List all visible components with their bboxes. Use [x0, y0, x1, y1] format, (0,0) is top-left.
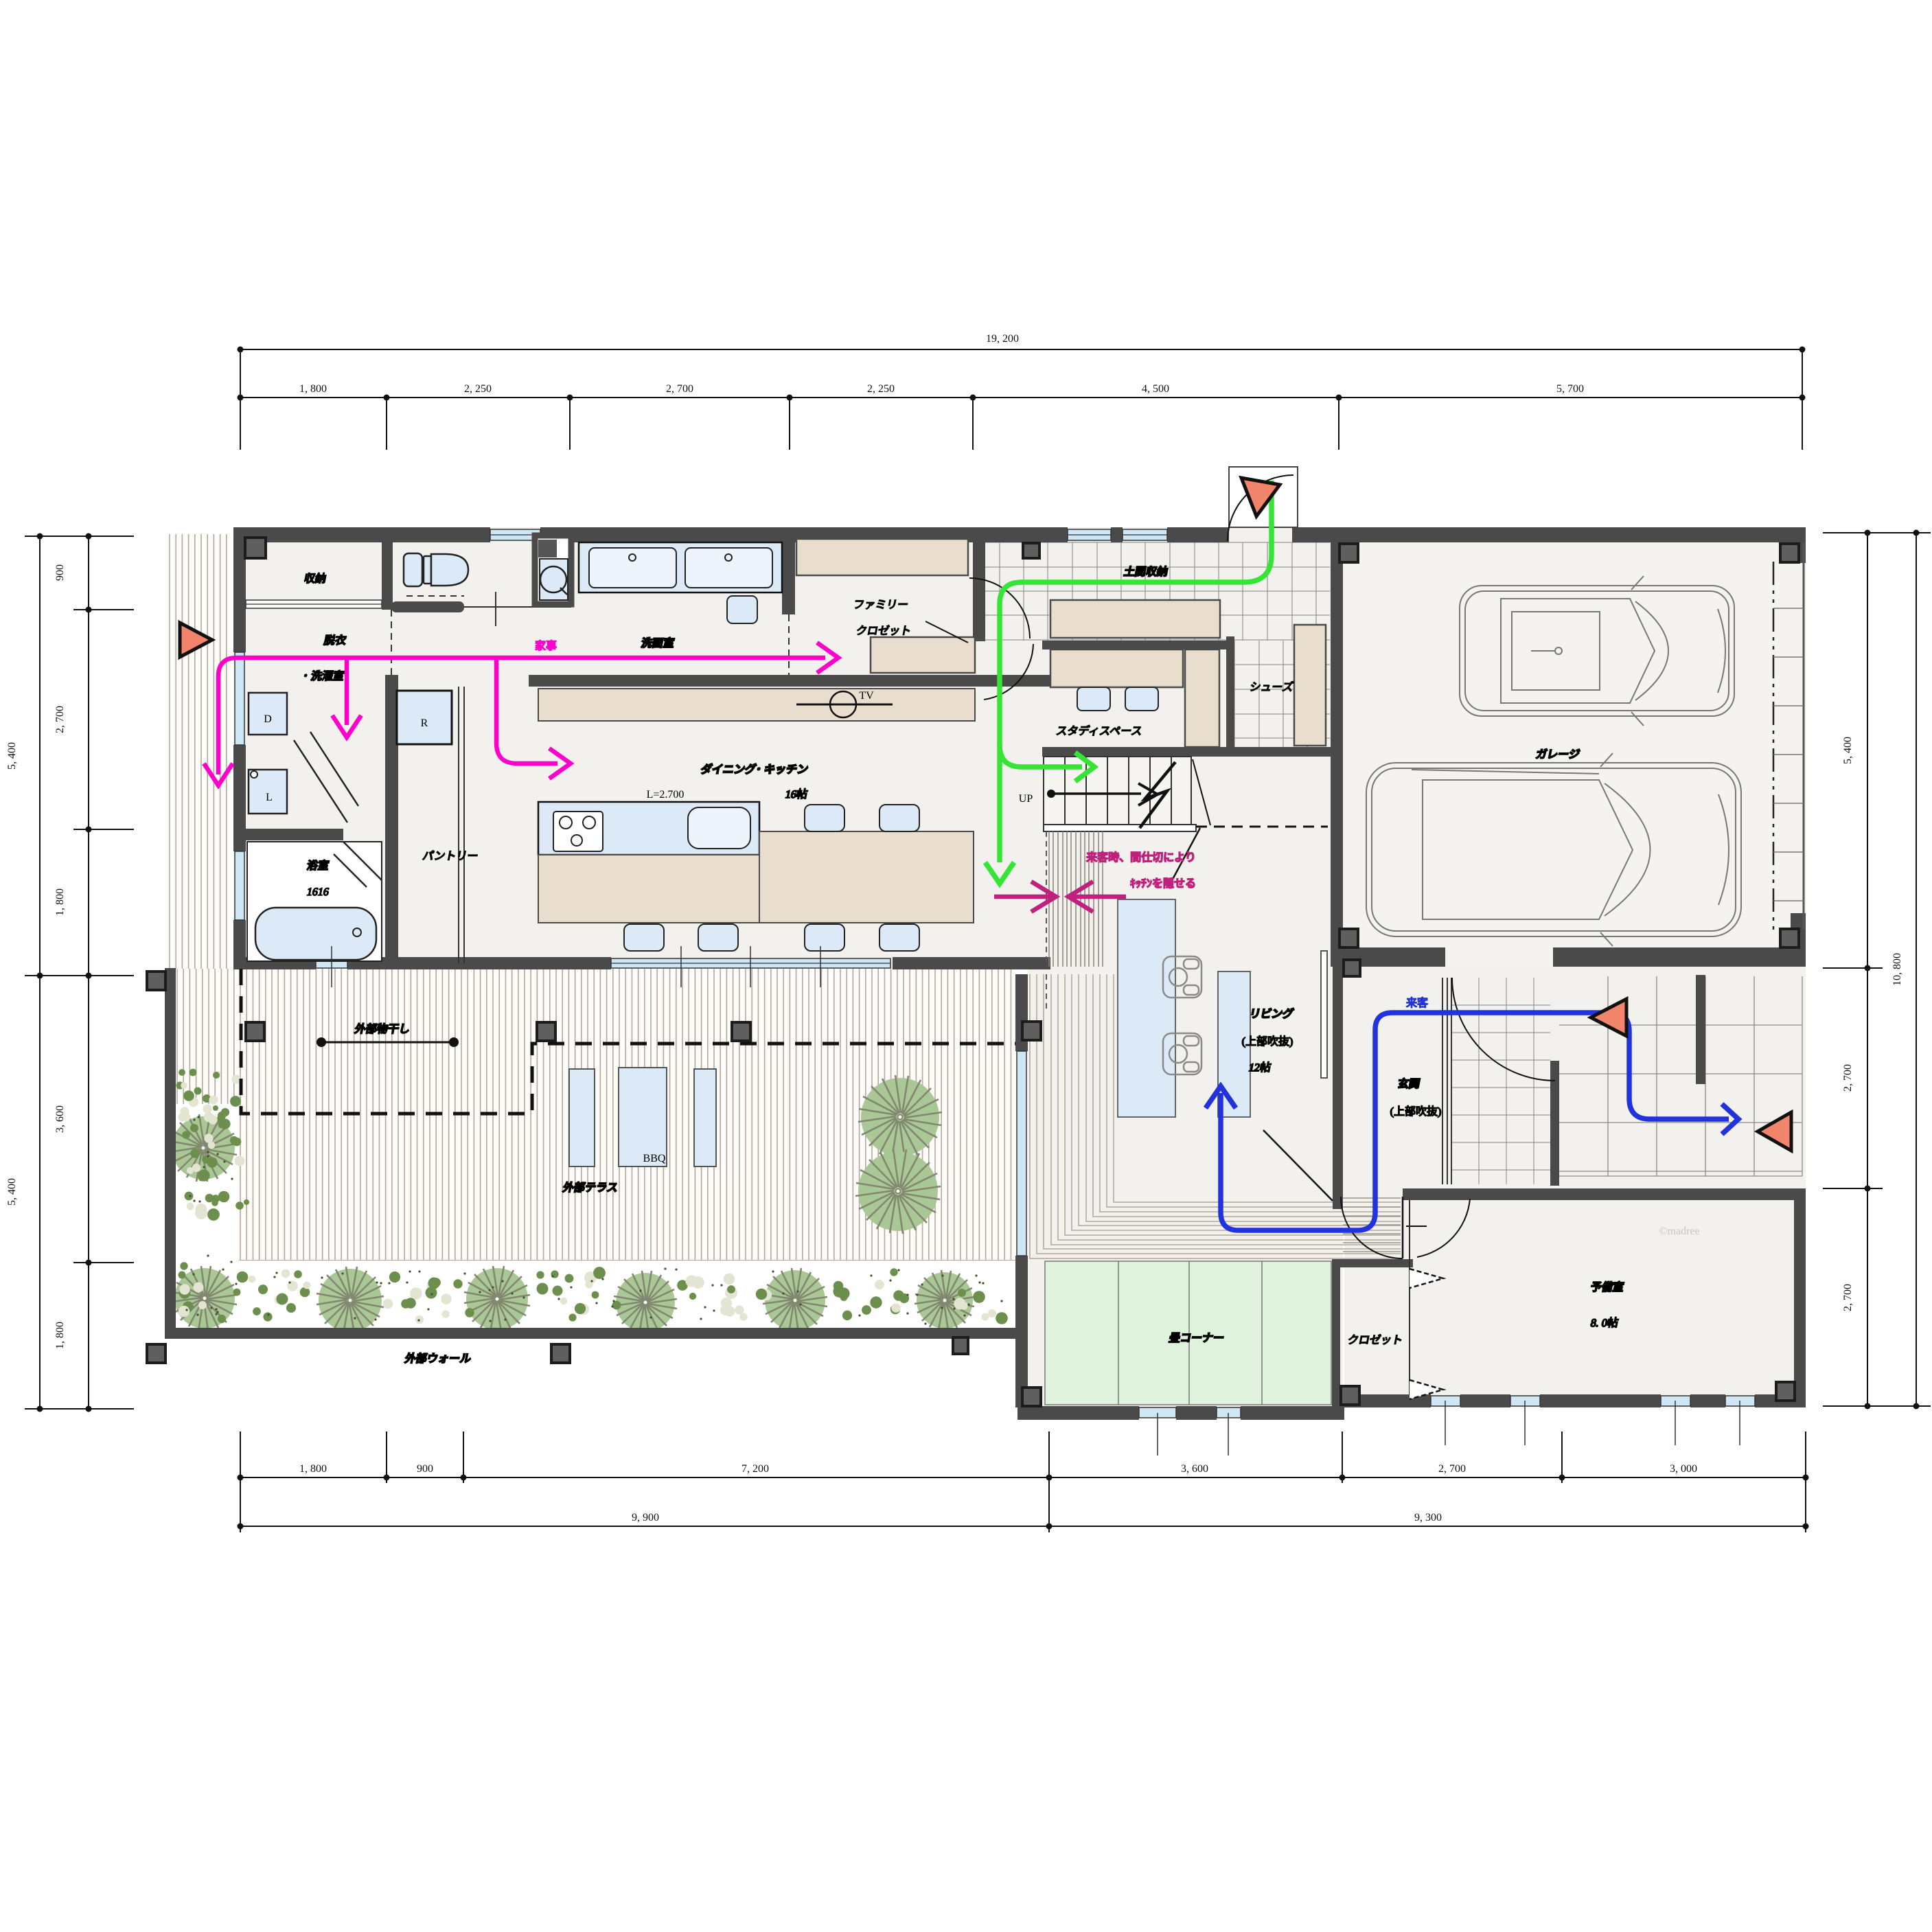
svg-text:クロゼット: クロゼット [1346, 1334, 1403, 1346]
svg-text:玄関: 玄関 [1396, 1078, 1421, 1090]
svg-text:2, 700: 2, 700 [666, 383, 693, 395]
svg-text:(上部吹抜): (上部吹抜) [1242, 1035, 1293, 1048]
svg-text:2, 700: 2, 700 [1438, 1463, 1466, 1475]
svg-text:畳コーナー: 畳コーナー [1168, 1333, 1225, 1344]
svg-text:UP: UP [1019, 793, 1033, 805]
svg-text:脱衣: 脱衣 [323, 634, 347, 647]
svg-text:8. 0帖: 8. 0帖 [1589, 1317, 1619, 1329]
svg-text:ファミリー: ファミリー [852, 599, 909, 611]
svg-text:900: 900 [417, 1463, 433, 1475]
svg-text:5, 700: 5, 700 [1556, 383, 1584, 395]
svg-text:1, 800: 1, 800 [299, 383, 327, 395]
svg-text:シューズ: シューズ [1249, 681, 1295, 693]
svg-text:L=2.700: L=2.700 [647, 789, 685, 801]
svg-text:9, 900: 9, 900 [632, 1512, 659, 1523]
svg-text:浴室: 浴室 [306, 860, 330, 872]
svg-text:ダイニング･ キッチン: ダイニング･ キッチン [700, 763, 809, 776]
svg-text:16帖: 16帖 [784, 788, 808, 801]
svg-text:･ 洗濯室: ･ 洗濯室 [301, 670, 345, 682]
svg-text:来客時、間仕切により: 来客時、間仕切により [1086, 851, 1196, 864]
svg-text:2, 700: 2, 700 [1842, 1064, 1854, 1092]
svg-text:パントリー: パントリー [422, 851, 479, 862]
svg-text:1616: 1616 [306, 886, 330, 898]
svg-text:TV: TV [859, 690, 874, 702]
svg-text:3, 600: 3, 600 [1181, 1463, 1208, 1475]
svg-text:来客: 来客 [1406, 997, 1428, 1009]
svg-text:19, 200: 19, 200 [986, 333, 1019, 345]
svg-text:2, 700: 2, 700 [54, 706, 66, 733]
svg-text:L: L [266, 792, 273, 803]
svg-text:収納: 収納 [303, 573, 327, 585]
svg-text:スタディスペース: スタディスペース [1055, 724, 1144, 737]
svg-text:©madree: ©madree [1659, 1226, 1699, 1237]
svg-text:5, 400: 5, 400 [6, 742, 18, 770]
svg-text:12帖: 12帖 [1247, 1061, 1272, 1074]
svg-text:1, 800: 1, 800 [54, 888, 66, 916]
svg-text:2, 700: 2, 700 [1842, 1284, 1854, 1311]
svg-text:土間収納: 土間収納 [1123, 566, 1169, 578]
svg-text:9, 300: 9, 300 [1414, 1512, 1442, 1523]
svg-text:家事: 家事 [535, 640, 557, 652]
svg-text:4, 500: 4, 500 [1142, 383, 1169, 395]
svg-text:5, 400: 5, 400 [1842, 737, 1854, 764]
svg-text:外部テラス: 外部テラス [562, 1182, 619, 1194]
svg-text:BBQ: BBQ [643, 1153, 666, 1164]
svg-text:3, 600: 3, 600 [54, 1105, 66, 1133]
svg-text:2, 250: 2, 250 [464, 383, 492, 395]
svg-text:(上部吹抜): (上部吹抜) [1390, 1105, 1442, 1118]
svg-text:1, 800: 1, 800 [299, 1463, 327, 1475]
svg-text:7, 200: 7, 200 [741, 1463, 769, 1475]
svg-text:R: R [421, 717, 428, 729]
svg-text:5, 400: 5, 400 [6, 1178, 18, 1206]
svg-text:予備室: 予備室 [1589, 1281, 1624, 1293]
svg-text:クロゼット: クロゼット [855, 625, 912, 637]
svg-text:900: 900 [54, 564, 66, 581]
svg-text:2, 250: 2, 250 [867, 383, 895, 395]
svg-text:外部物干し: 外部物干し [354, 1023, 411, 1035]
svg-text:1, 800: 1, 800 [54, 1322, 66, 1349]
svg-text:D: D [264, 713, 272, 725]
svg-text:10, 800: 10, 800 [1891, 953, 1903, 986]
svg-text:ｷｯﾁﾝを隠せる: ｷｯﾁﾝを隠せる [1130, 877, 1196, 890]
svg-text:洗面室: 洗面室 [640, 637, 675, 649]
svg-text:外部ウォール: 外部ウォール [404, 1353, 472, 1365]
svg-text:ガレージ: ガレージ [1534, 748, 1580, 761]
svg-text:3, 000: 3, 000 [1670, 1463, 1697, 1475]
svg-text:リビング: リビング [1248, 1008, 1294, 1020]
